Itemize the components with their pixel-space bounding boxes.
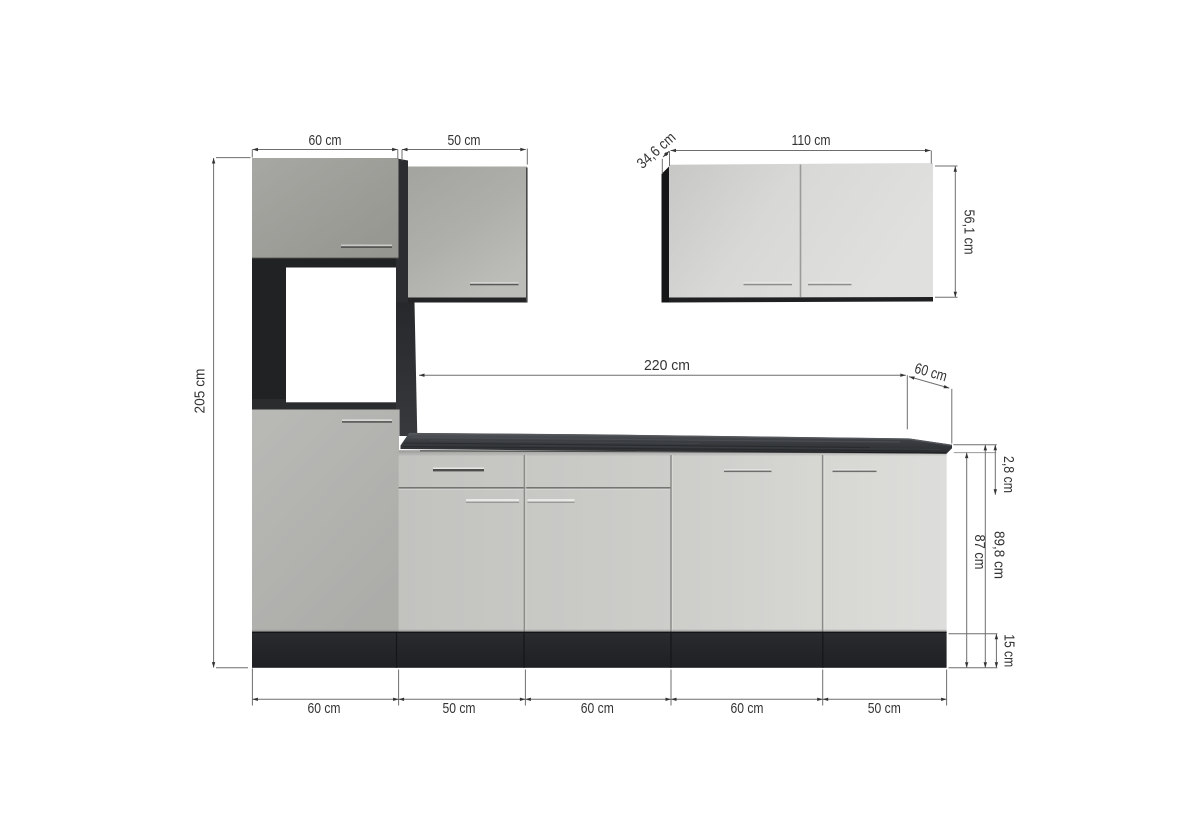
svg-text:110 cm: 110 cm: [792, 132, 831, 149]
svg-text:50 cm: 50 cm: [443, 700, 476, 717]
svg-text:205 cm: 205 cm: [192, 369, 209, 414]
svg-text:15 cm: 15 cm: [1001, 634, 1018, 667]
svg-text:50 cm: 50 cm: [868, 700, 901, 717]
svg-text:50 cm: 50 cm: [448, 132, 481, 149]
svg-text:60 cm: 60 cm: [581, 700, 614, 717]
svg-text:89,8 cm: 89,8 cm: [990, 531, 1007, 579]
svg-text:220 cm: 220 cm: [644, 357, 690, 374]
svg-text:60 cm: 60 cm: [309, 132, 342, 149]
svg-text:60 cm: 60 cm: [731, 700, 764, 717]
svg-text:60 cm: 60 cm: [308, 700, 341, 717]
svg-text:56,1 cm: 56,1 cm: [961, 210, 978, 255]
svg-text:2,8 cm: 2,8 cm: [1000, 456, 1017, 493]
